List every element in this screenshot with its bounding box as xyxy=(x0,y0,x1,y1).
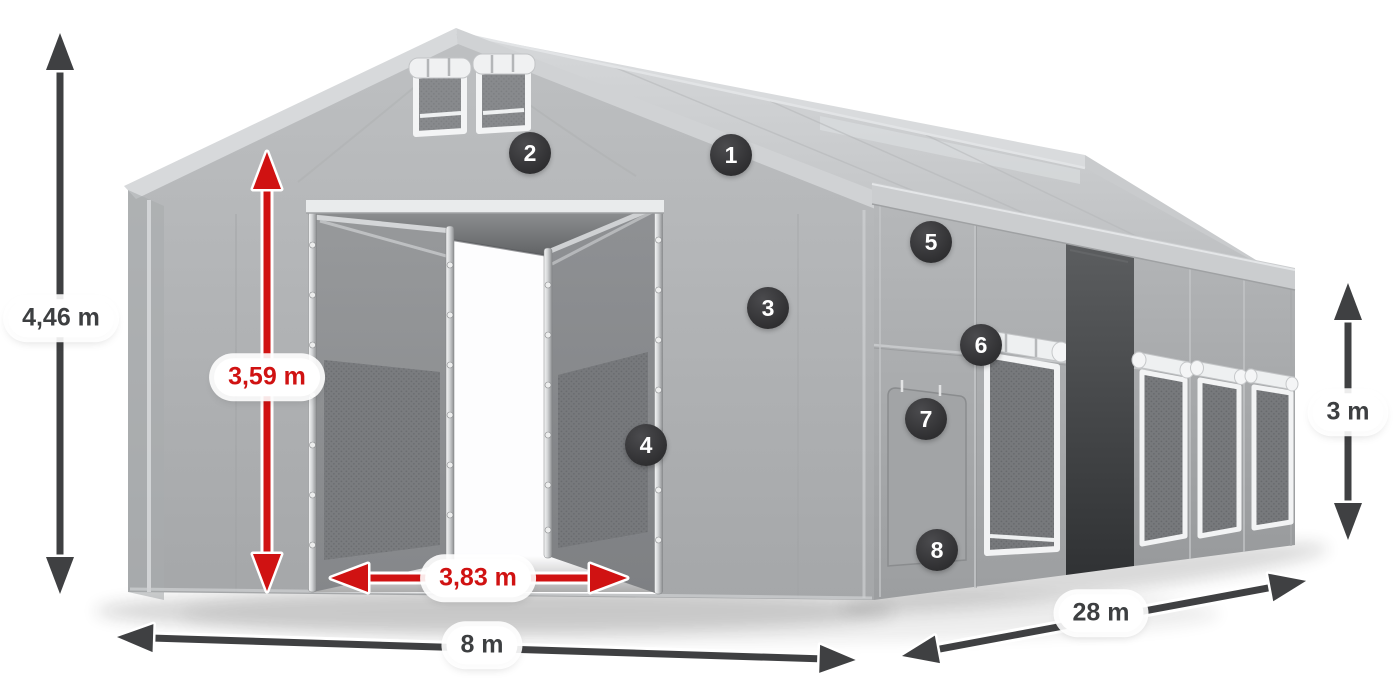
dim-label-entrance-width: 3,83 m xyxy=(425,559,531,597)
dim-label-entrance-height: 3,59 m xyxy=(214,358,320,396)
dim-label-total-height: 4,46 m xyxy=(8,299,114,337)
dim-label-side-wall-height: 3 m xyxy=(1312,393,1383,431)
sliding-door-gap xyxy=(1066,240,1134,575)
roof-vent-1 xyxy=(409,58,471,134)
dim-label-front-width: 8 m xyxy=(446,626,517,664)
door-leaf-right xyxy=(548,202,658,594)
window-bay-3 xyxy=(1245,369,1298,528)
side-wall-near-section xyxy=(874,196,1070,600)
callout-4: 4 xyxy=(625,424,667,466)
callout-7: 7 xyxy=(905,398,947,440)
side-wall-far-section xyxy=(1132,254,1298,566)
door-leaf-left xyxy=(313,214,452,592)
callout-8: 8 xyxy=(916,529,958,571)
callout-1: 1 xyxy=(710,134,752,176)
tent-dimension-diagram: 4,46 m 3,59 m 3,83 m 8 m 28 m 3 m 1 2 3 … xyxy=(0,0,1400,700)
callout-5: 5 xyxy=(910,221,952,263)
callout-2: 2 xyxy=(509,132,551,174)
roof-vent-2 xyxy=(473,54,535,131)
window-bay-2 xyxy=(1191,361,1248,537)
window-bay-1 xyxy=(1132,352,1194,544)
front-entrance xyxy=(309,202,663,594)
entrance-header-beam xyxy=(306,200,664,213)
callout-6: 6 xyxy=(960,324,1002,366)
callout-3: 3 xyxy=(747,287,789,329)
dim-label-side-length: 28 m xyxy=(1059,594,1144,632)
tent-illustration xyxy=(0,0,1400,700)
